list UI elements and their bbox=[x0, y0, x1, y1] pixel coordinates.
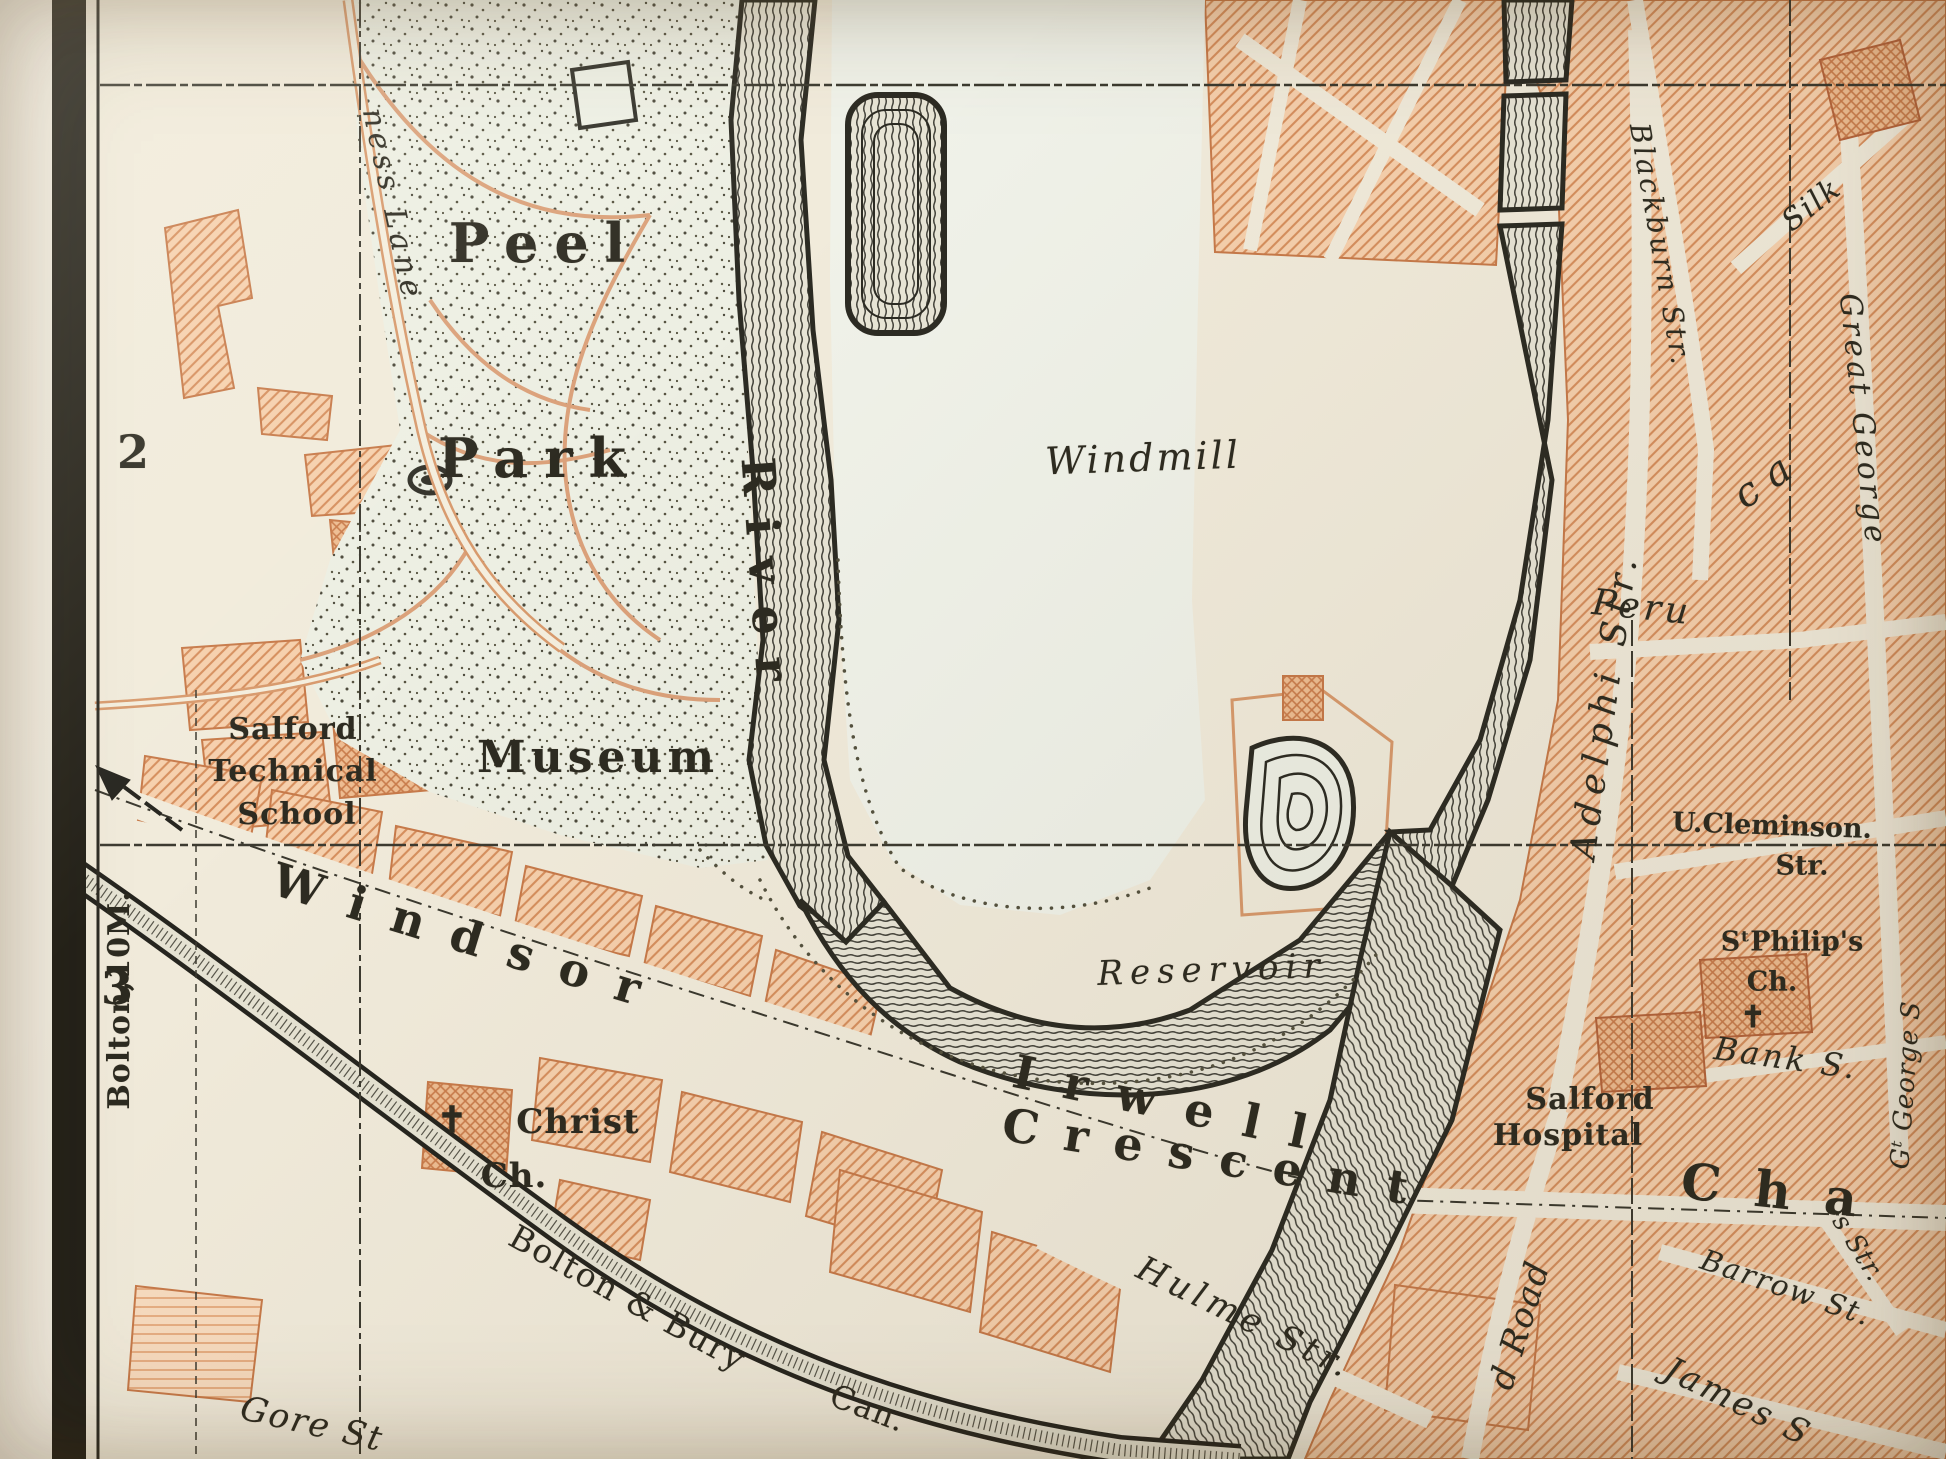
map-artwork bbox=[0, 0, 1946, 1459]
salford-hospital-building bbox=[1596, 1012, 1706, 1092]
map-canvas: PeelParkMuseumSalfordTechnicalSchoolWind… bbox=[0, 0, 1946, 1459]
reservoir-basin bbox=[848, 95, 944, 333]
st-philips-church-building bbox=[1700, 954, 1812, 1038]
park-structure bbox=[572, 62, 636, 128]
